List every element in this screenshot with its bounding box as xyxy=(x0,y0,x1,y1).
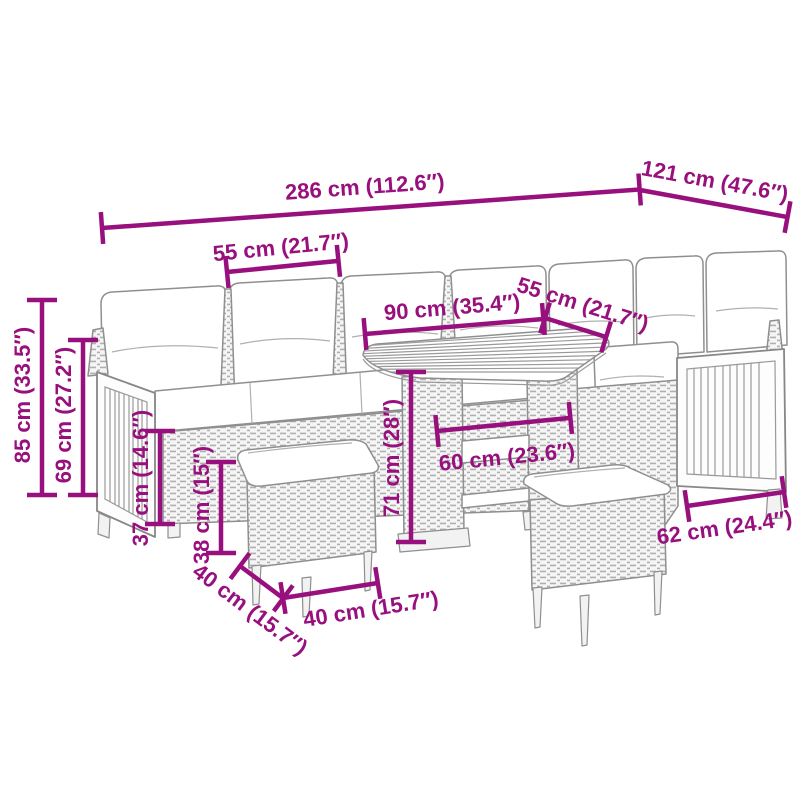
stool-leg xyxy=(654,571,662,615)
dim-label-table-height: 71 cm (28″) xyxy=(379,399,404,517)
armrest-frame xyxy=(677,349,786,492)
diagram-canvas: 286 cm (112.6″) 121 cm (47.6″) 55 cm (21… xyxy=(0,0,800,800)
right-stool xyxy=(524,465,671,646)
dim-total-length: 286 cm (112.6″) xyxy=(99,155,640,244)
left-stool xyxy=(238,440,379,617)
dim-label-side-depth: 62 cm (24.4″) xyxy=(655,505,794,549)
stool-leg xyxy=(533,587,542,628)
dim-label-total-length: 286 cm (112.6″) xyxy=(284,168,445,204)
stool-leg xyxy=(580,595,589,646)
dim-label-total-height: 85 cm (33.5″) xyxy=(10,327,35,464)
dim-stool-width: 40 cm (15.7″) xyxy=(280,558,440,634)
dim-label-stool-height: 38 cm (15″) xyxy=(189,446,214,564)
dim-total-height: 85 cm (33.5″) xyxy=(10,300,57,495)
dim-label-seat-height: 37 cm (14.6″) xyxy=(128,410,153,547)
dim-label-armrest-height: 69 cm (27.2″) xyxy=(51,347,76,484)
sofa-foot xyxy=(98,513,110,538)
back-pillow xyxy=(229,278,339,389)
dim-label-side-length: 121 cm (47.6″) xyxy=(639,155,790,206)
dim-side-length: 121 cm (47.6″) xyxy=(635,155,794,233)
dimension-diagram: 286 cm (112.6″) 121 cm (47.6″) 55 cm (21… xyxy=(0,0,800,800)
